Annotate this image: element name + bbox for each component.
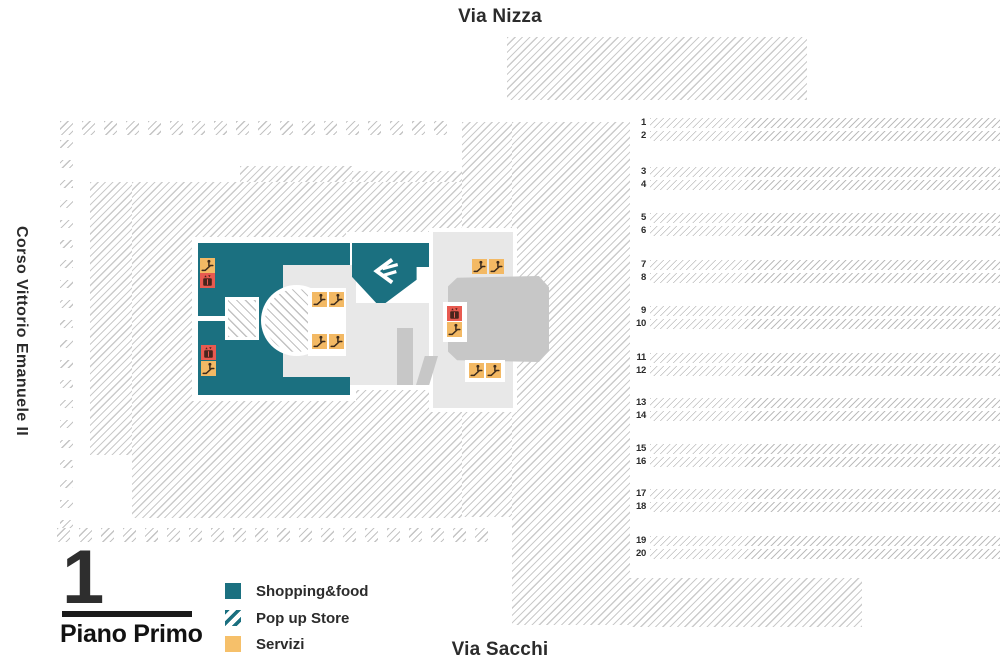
legend-label-shopping: Shopping&food	[256, 583, 368, 599]
platform-number: 14	[626, 411, 646, 421]
block-hatch-center-col	[512, 122, 630, 625]
platform-number: 9	[626, 306, 646, 316]
escalator-icon	[329, 334, 344, 349]
escalator-icon	[329, 292, 344, 307]
platform-track	[650, 444, 1000, 454]
station-floor-map: Via Nizza Corso Vittorio Emanuele II Via…	[0, 0, 1000, 666]
platform-track	[650, 131, 1000, 141]
floor-number: 1	[62, 540, 102, 616]
platform-number: 15	[626, 444, 646, 454]
platform-track	[650, 213, 1000, 223]
platform-track	[650, 260, 1000, 270]
block-hatch-main-west	[90, 182, 132, 455]
platform-number: 13	[626, 398, 646, 408]
platform-track	[650, 306, 1000, 316]
brand-chevron-icon	[371, 258, 399, 286]
street-label-corso-vittorio: Corso Vittorio Emanuele II	[12, 226, 30, 436]
platform-track	[650, 366, 1000, 376]
platform-track	[650, 502, 1000, 512]
floor-rule	[62, 611, 192, 617]
platform-number: 19	[626, 536, 646, 546]
platform-number: 2	[626, 131, 646, 141]
platform-track	[650, 549, 1000, 559]
platform-track	[650, 167, 1000, 177]
platform-track	[650, 536, 1000, 546]
block-hatch-bottom-band	[630, 578, 862, 627]
escalator-icon	[200, 258, 215, 273]
platform-track	[650, 457, 1000, 467]
platform-number: 6	[626, 226, 646, 236]
platform-track	[650, 411, 1000, 421]
platform-number: 4	[626, 180, 646, 190]
elevator-icon	[200, 273, 215, 288]
platform-track	[650, 273, 1000, 283]
platform-number: 11	[626, 353, 646, 363]
platform-track	[650, 398, 1000, 408]
escalator-icon	[469, 363, 484, 378]
escalator-icon	[472, 259, 487, 274]
floor-name: Piano Primo	[60, 620, 203, 649]
platform-number: 20	[626, 549, 646, 559]
platform-number: 3	[626, 167, 646, 177]
popup-store-room	[228, 300, 256, 337]
platform-number: 17	[626, 489, 646, 499]
platform-number: 12	[626, 366, 646, 376]
platform-number: 7	[626, 260, 646, 270]
platform-number: 16	[626, 457, 646, 467]
block-hatch-dash-left	[60, 140, 73, 530]
platform-track	[650, 353, 1000, 363]
elevator-icon	[447, 306, 462, 321]
legend-swatch-shopping	[225, 583, 241, 599]
escalator-icon	[312, 292, 327, 307]
escalator-icon	[447, 322, 462, 337]
legend-label-popup: Pop up Store	[256, 610, 349, 626]
platform-track	[650, 226, 1000, 236]
block-hatch-dash-top	[60, 121, 456, 135]
legend-swatch-popup	[225, 610, 241, 626]
platform-track	[650, 489, 1000, 499]
escalator-icon	[486, 363, 501, 378]
legend-label-servizi: Servizi	[256, 636, 304, 652]
elevator-icon	[201, 345, 216, 360]
legend-swatch-servizi	[225, 636, 241, 652]
platform-number: 10	[626, 319, 646, 329]
escalator-icon	[201, 361, 216, 376]
block-hatch-dash-bottom	[57, 528, 493, 542]
platform-number: 5	[626, 213, 646, 223]
platform-number: 8	[626, 273, 646, 283]
block-hatch-main-step2	[352, 171, 462, 182]
platform-track	[650, 180, 1000, 190]
ramp-north	[397, 328, 413, 385]
block-hatch-main-step1	[240, 166, 352, 182]
platform-track	[650, 319, 1000, 329]
platform-number: 1	[626, 118, 646, 128]
escalator-icon	[312, 334, 327, 349]
street-label-via-nizza: Via Nizza	[0, 6, 1000, 28]
platform-track	[650, 118, 1000, 128]
escalator-icon	[489, 259, 504, 274]
block-hatch-top-band	[507, 37, 807, 100]
platform-number: 18	[626, 502, 646, 512]
